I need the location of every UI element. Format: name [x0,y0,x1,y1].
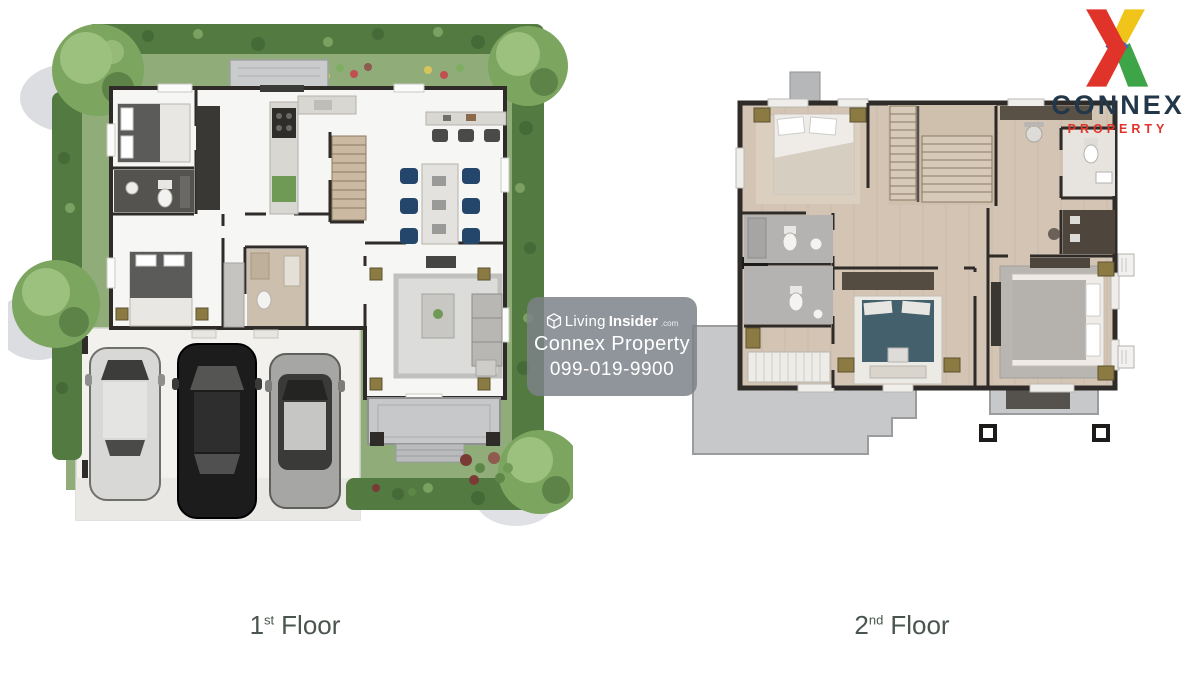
floor1-word: Floor [281,610,340,640]
bathroom [1063,130,1115,196]
connex-x-icon [1072,6,1164,90]
dining-table [400,164,480,244]
column [1094,426,1108,440]
garage [85,344,345,518]
front-door [260,85,304,92]
stairs [888,105,996,206]
bathroom [744,215,833,263]
column [981,426,995,440]
bed [118,104,190,162]
house-floor2 [736,99,1119,392]
brand-living: Living [565,313,606,330]
first-floor-plan [8,8,573,533]
brand-suffix: .com [661,319,678,328]
car [172,344,262,518]
floor2-number: 2 [854,610,868,640]
ac-unit [1118,254,1134,368]
wardrobe [224,263,244,327]
tree-icon [12,260,100,348]
bed [754,108,866,204]
logo-tagline-text: PROPERTY [1040,123,1196,136]
brand-insider: Insider [609,313,658,330]
watermark-company: Connex Property [527,333,697,356]
bed [991,258,1114,380]
car [85,348,165,500]
bathroom [114,170,194,212]
wardrobe [842,272,934,290]
floor1-number: 1 [250,610,264,640]
cube-icon [546,313,562,329]
watermark-phone: 099-019-9900 [527,359,697,381]
logo-brand-text: CONNEX [1040,92,1196,119]
floor1-ordinal: st [264,612,274,627]
living-insider-brand: LivingInsider.com [527,313,697,330]
bathroom [744,266,833,324]
tv-cabinet [991,282,1001,346]
page: LivingInsider.com Connex Property 099-01… [0,0,1200,699]
floor2-ordinal: nd [869,612,883,627]
floor1-label: 1stFloor [145,610,445,641]
connex-logo: CONNEX PROPERTY [1040,6,1196,136]
dresser [1030,258,1090,268]
cabinet [196,106,220,210]
stairs [332,136,366,220]
floor2-label: 2ndFloor [752,610,1052,641]
floor2-word: Floor [890,610,949,640]
tv-cabinet [426,256,456,268]
car [265,354,345,508]
sofa [472,294,502,366]
watermark: LivingInsider.com Connex Property 099-01… [527,297,697,396]
bathroom [247,249,305,326]
